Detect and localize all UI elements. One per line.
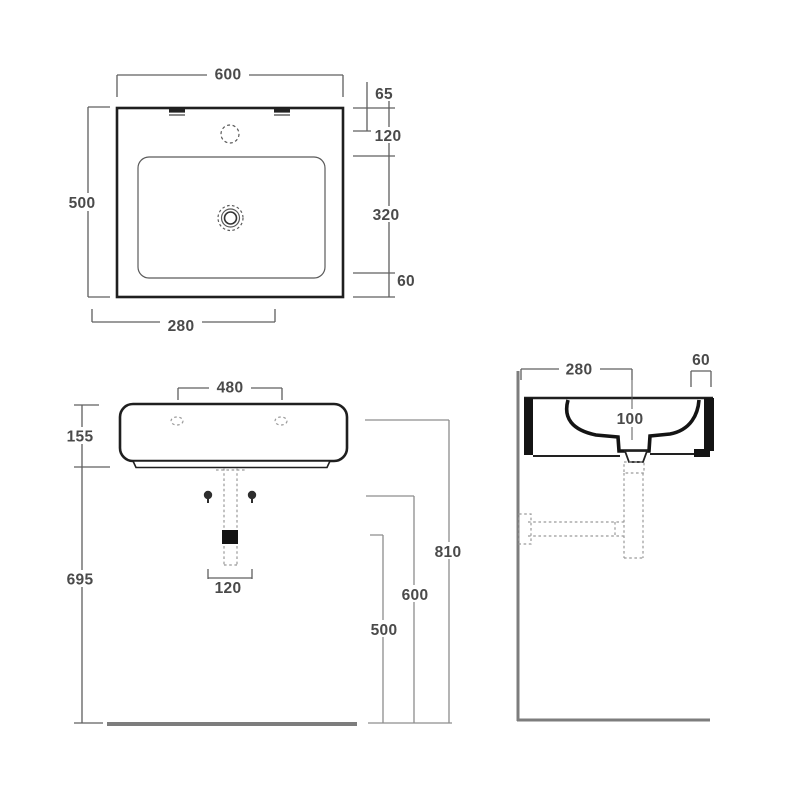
side-view: 280 60 100	[517, 352, 714, 721]
dim-chain-65-label: 65	[375, 86, 393, 103]
fixing-bolt-right	[248, 491, 256, 503]
drain-fitting	[624, 462, 644, 473]
sink-rim-outline	[117, 108, 343, 297]
dim-tap-spacing-label: 480	[217, 380, 244, 397]
dim-trap-width: 120	[208, 569, 252, 597]
dim-bowl-depth-label: 100	[617, 411, 644, 428]
dim-height-rim-label: 810	[435, 544, 462, 561]
dim-right-heights: 810 600 500	[365, 420, 467, 723]
dim-right-chain: 65 120 320 60	[353, 82, 415, 297]
isolation-valve	[222, 530, 238, 544]
dim-height-mid-label: 600	[402, 587, 429, 604]
waste-pipe-hidden	[216, 468, 245, 565]
front-edge-section	[704, 398, 714, 451]
technical-drawing-washbasin: 600 500 280 65 120 320 60	[0, 0, 800, 800]
fixing-bolt-left	[204, 491, 212, 503]
dim-wall-to-drain-label: 280	[566, 362, 593, 379]
dim-chain-320-label: 320	[373, 207, 400, 224]
dim-chain-60-label: 60	[397, 273, 415, 290]
dim-overall-width: 600	[117, 65, 343, 97]
dim-trap-width-label: 120	[215, 580, 242, 597]
dim-drain-offset: 280	[92, 309, 275, 335]
dim-wall-to-drain: 280	[521, 360, 632, 380]
dim-overall-depth-label: 500	[69, 195, 96, 212]
overflow-outlet	[694, 449, 710, 457]
dim-overall-width-label: 600	[215, 67, 242, 84]
dim-left-chain: 155 695	[61, 405, 110, 723]
top-view: 600 500 280 65 120 320 60	[62, 65, 415, 335]
dim-drain-offset-label: 280	[168, 318, 195, 335]
pipework-hidden	[519, 462, 644, 558]
drain-funnel	[625, 451, 647, 462]
dim-overhang: 60	[691, 352, 711, 387]
dim-overhang-label: 60	[692, 352, 710, 369]
sink-section	[524, 398, 714, 462]
dim-clearance-label: 695	[67, 572, 94, 589]
dim-chain-120-label: 120	[375, 128, 402, 145]
sink-body-front	[120, 404, 347, 461]
dim-tap-spacing: 480	[178, 378, 282, 400]
fixing-hole-right	[274, 109, 290, 116]
dim-height-trap-label: 500	[371, 622, 398, 639]
dim-overall-depth: 500	[62, 107, 110, 297]
dim-bowl-depth: 100	[611, 380, 650, 440]
wall-pipe-flange	[519, 514, 531, 544]
drawing-svg: 600 500 280 65 120 320 60	[0, 0, 800, 800]
front-view: 480 120 155	[61, 378, 467, 724]
wall-flange-section	[524, 398, 533, 455]
fixing-hole-left	[169, 109, 185, 116]
mounting-plate	[133, 461, 330, 468]
dim-body-height-label: 155	[67, 429, 94, 446]
